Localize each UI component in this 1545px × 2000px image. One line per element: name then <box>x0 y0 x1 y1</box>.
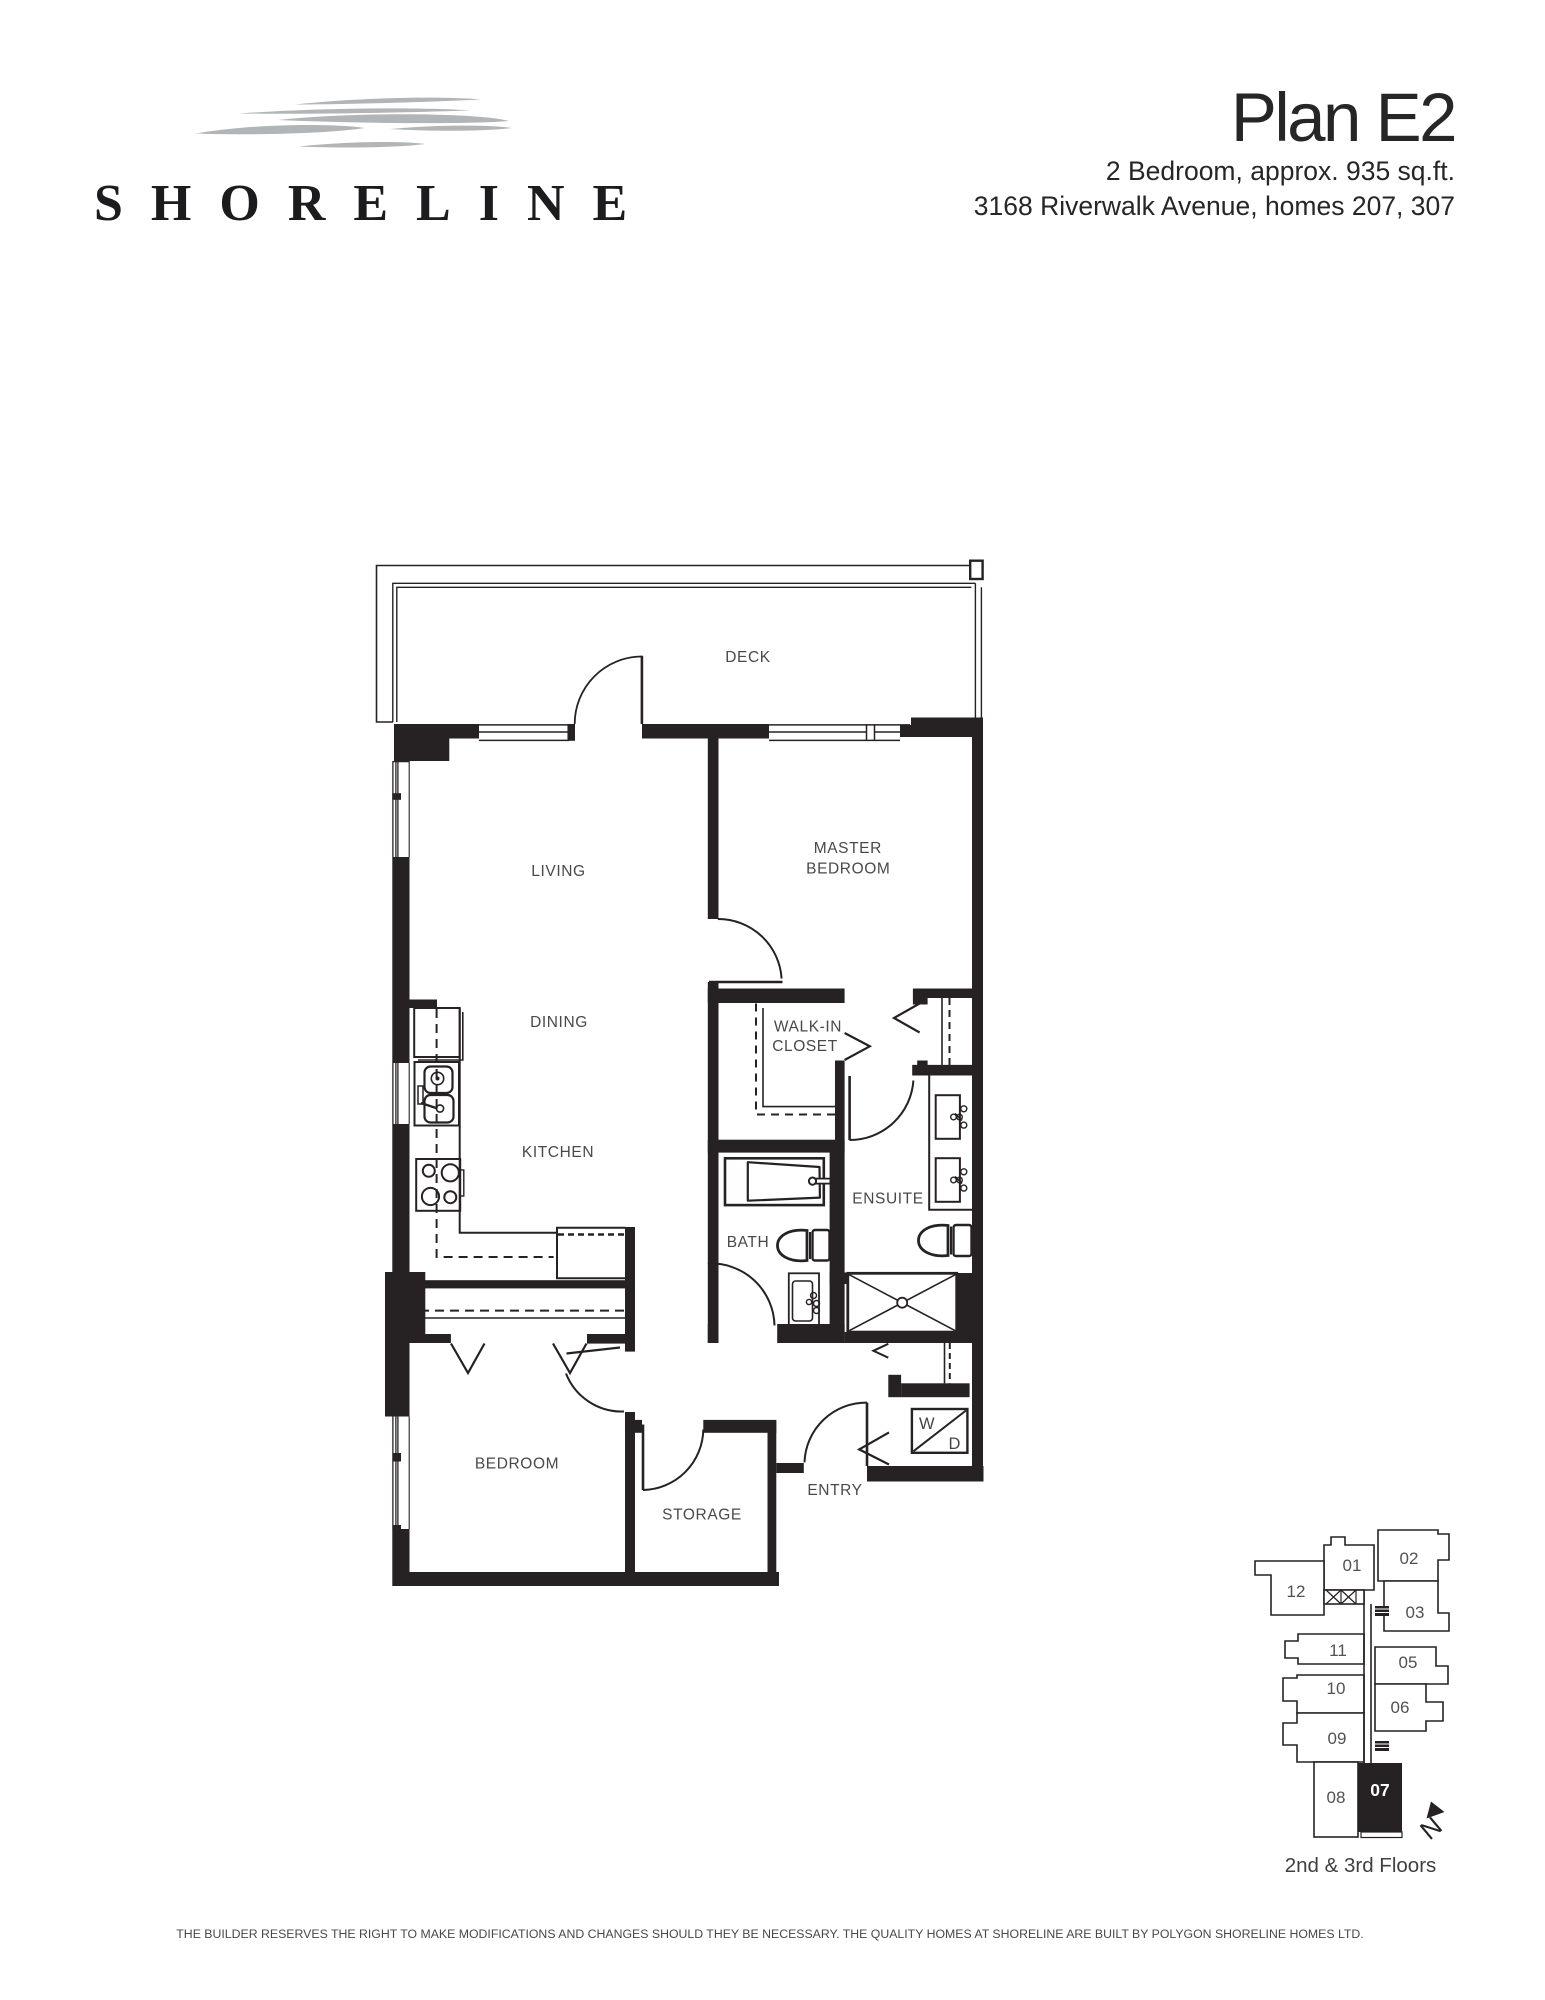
svg-text:DECK: DECK <box>725 649 771 666</box>
svg-text:12: 12 <box>1287 1582 1306 1601</box>
svg-text:N: N <box>1414 1811 1448 1846</box>
svg-text:10: 10 <box>1327 1679 1346 1698</box>
svg-text:W: W <box>919 1415 935 1433</box>
svg-text:THE BUILDER RESERVES THE RIGHT: THE BUILDER RESERVES THE RIGHT TO MAKE M… <box>176 1927 1363 1941</box>
svg-text:09: 09 <box>1328 1729 1347 1748</box>
svg-text:DINING: DINING <box>530 1014 588 1031</box>
svg-text:2nd & 3rd Floors: 2nd & 3rd Floors <box>1285 1854 1437 1877</box>
svg-text:3168 Riverwalk Avenue, homes 2: 3168 Riverwalk Avenue, homes 207, 307 <box>974 191 1455 221</box>
svg-text:D: D <box>949 1435 961 1453</box>
svg-text:06: 06 <box>1391 1698 1410 1717</box>
svg-text:2 Bedroom, approx. 935 sq.ft.: 2 Bedroom, approx. 935 sq.ft. <box>1106 156 1455 186</box>
svg-text:Plan E2: Plan E2 <box>1231 79 1455 156</box>
svg-text:ENTRY: ENTRY <box>807 1482 862 1499</box>
svg-text:CLOSET: CLOSET <box>772 1038 838 1055</box>
svg-text:03: 03 <box>1406 1603 1425 1622</box>
svg-text:07: 07 <box>1370 1780 1389 1800</box>
svg-text:02: 02 <box>1400 1549 1419 1568</box>
svg-text:WALK-IN: WALK-IN <box>774 1019 842 1036</box>
svg-text:LIVING: LIVING <box>531 863 585 880</box>
svg-text:SHORELINE: SHORELINE <box>94 175 655 232</box>
svg-text:ENSUITE: ENSUITE <box>852 1191 923 1208</box>
svg-text:STORAGE: STORAGE <box>662 1507 742 1524</box>
svg-text:05: 05 <box>1399 1653 1418 1672</box>
svg-text:BATH: BATH <box>727 1234 770 1251</box>
svg-text:BEDROOM: BEDROOM <box>475 1456 559 1473</box>
svg-text:MASTER: MASTER <box>814 840 882 857</box>
svg-text:BEDROOM: BEDROOM <box>806 861 890 878</box>
svg-text:01: 01 <box>1343 1556 1362 1575</box>
svg-text:11: 11 <box>1329 1641 1347 1660</box>
svg-text:KITCHEN: KITCHEN <box>522 1144 594 1161</box>
svg-text:08: 08 <box>1327 1788 1346 1807</box>
